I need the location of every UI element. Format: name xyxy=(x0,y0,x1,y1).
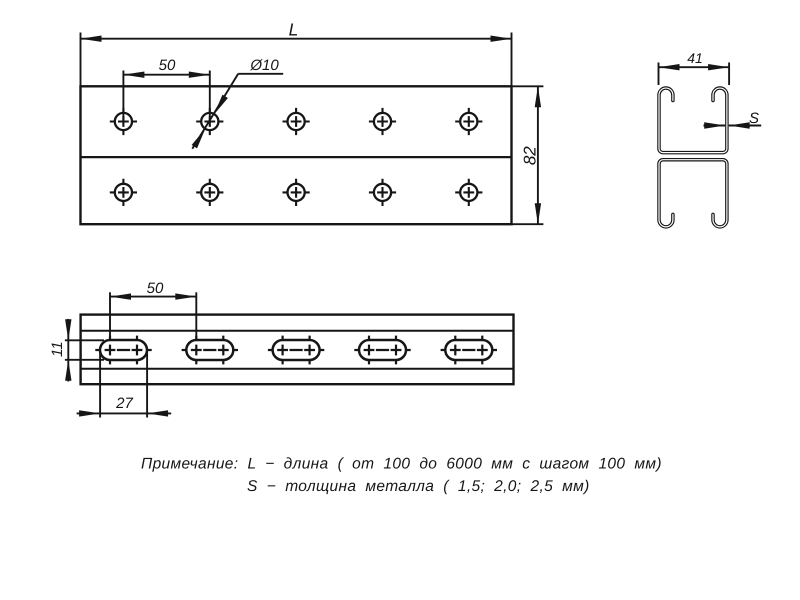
svg-text:11: 11 xyxy=(49,341,66,357)
svg-text:S − толщина металла ( 1,5; 2,0: S − толщина металла ( 1,5; 2,0; 2,5 мм) xyxy=(247,478,590,495)
svg-text:41: 41 xyxy=(687,50,703,66)
svg-text:S: S xyxy=(749,110,759,127)
svg-text:50: 50 xyxy=(159,57,176,74)
svg-text:82: 82 xyxy=(520,146,539,165)
svg-text:27: 27 xyxy=(115,395,133,412)
svg-text:L: L xyxy=(289,20,299,40)
svg-text:Примечание: L − длина ( от 100: Примечание: L − длина ( от 100 до 6000 м… xyxy=(141,456,662,473)
svg-text:Ø10: Ø10 xyxy=(249,57,279,74)
svg-text:50: 50 xyxy=(147,280,164,297)
